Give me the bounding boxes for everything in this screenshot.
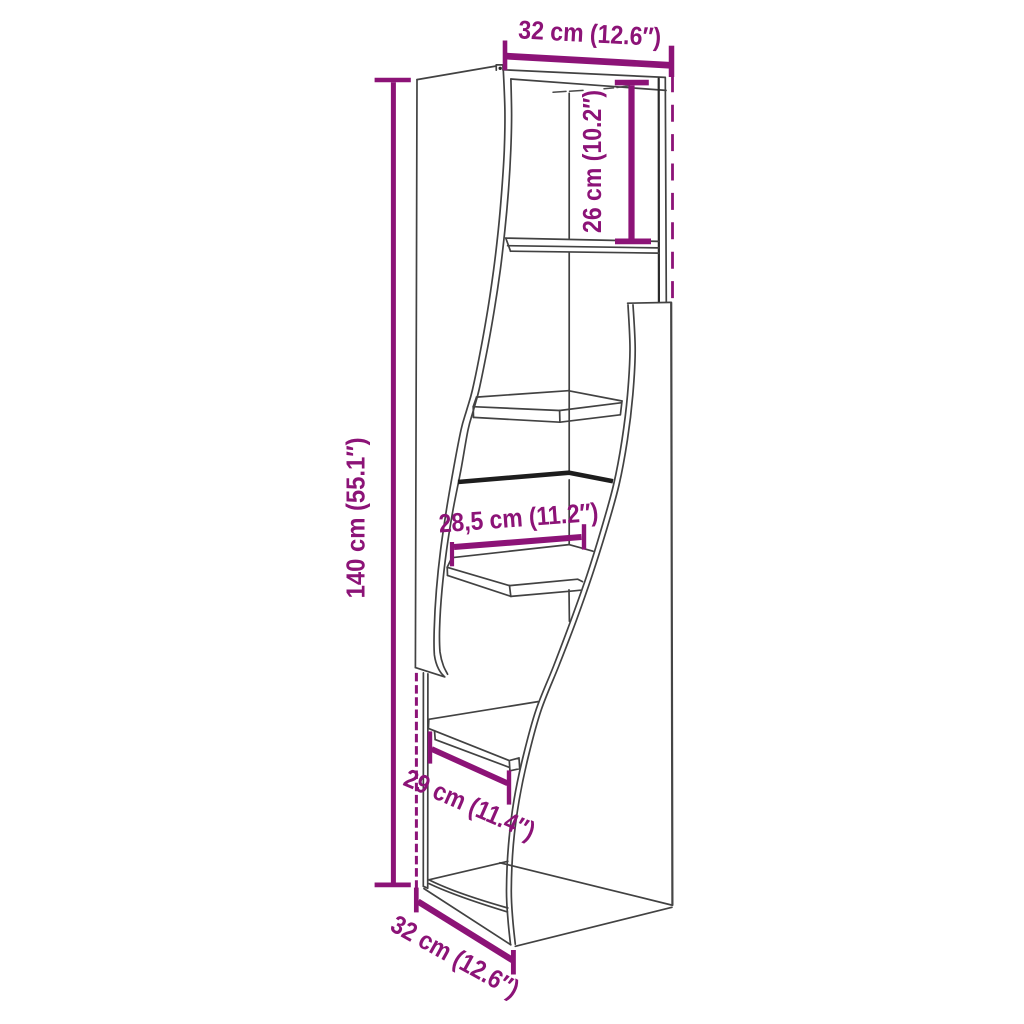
svg-text:26 cm (10.2″): 26 cm (10.2″): [577, 90, 607, 233]
svg-text:140 cm (55.1″): 140 cm (55.1″): [341, 437, 371, 598]
